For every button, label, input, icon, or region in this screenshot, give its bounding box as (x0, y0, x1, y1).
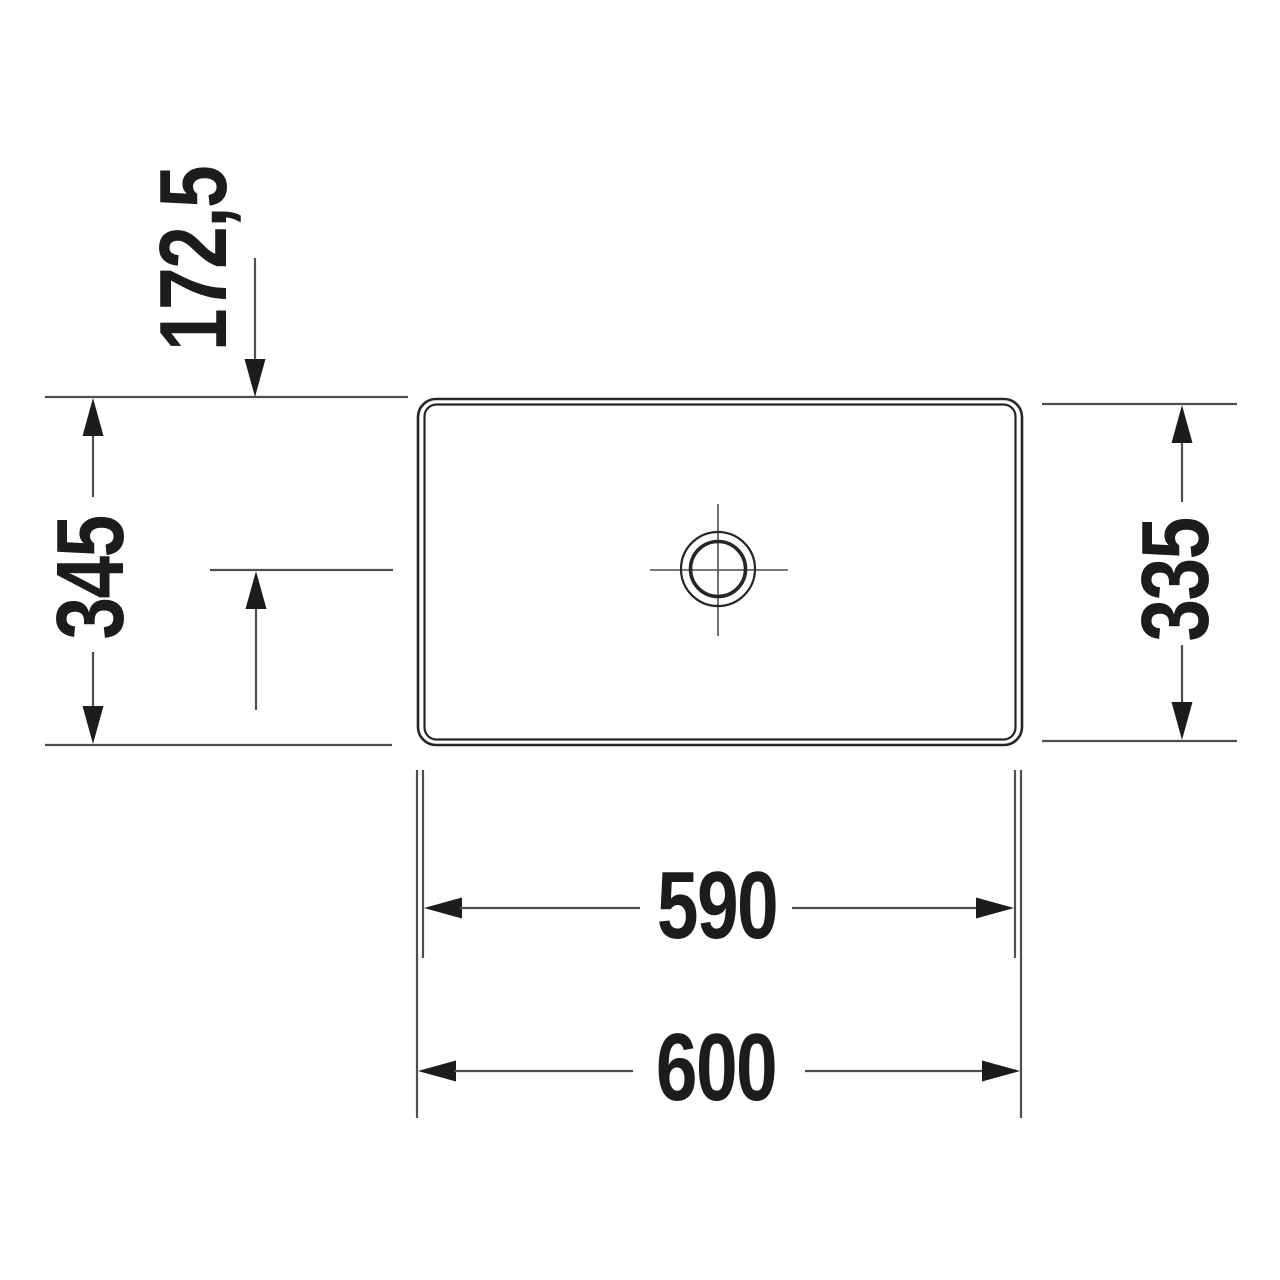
arrow-up-icon (83, 398, 104, 436)
arrow-down-icon (83, 706, 104, 744)
basin-outer-rim (418, 399, 1022, 745)
dimension-label-inner-width: 590 (657, 858, 777, 954)
arrow-left-icon (418, 1061, 456, 1082)
technical-drawing-stage: 172,5 345 335 590 600 (0, 0, 1280, 1280)
arrow-up-icon (1172, 405, 1193, 443)
arrow-right-icon (982, 1061, 1020, 1082)
dimension-label-left-depth: 345 (43, 516, 139, 639)
arrow-right-icon (976, 898, 1014, 919)
dimension-top-offset (245, 258, 267, 710)
washbasin-outline (418, 399, 1022, 745)
dimension-label-outer-width: 600 (656, 1020, 776, 1116)
dimension-label-top-offset: 172,5 (146, 167, 242, 351)
extension-lines (45, 397, 1237, 1118)
arrow-up-icon (246, 571, 267, 609)
drain (650, 504, 788, 636)
basin-inner-rim (425, 405, 1016, 740)
arrow-down-icon (1172, 702, 1193, 740)
dimension-label-right-depth: 335 (1128, 518, 1224, 641)
arrow-down-icon (245, 359, 266, 397)
arrow-left-icon (424, 898, 462, 919)
